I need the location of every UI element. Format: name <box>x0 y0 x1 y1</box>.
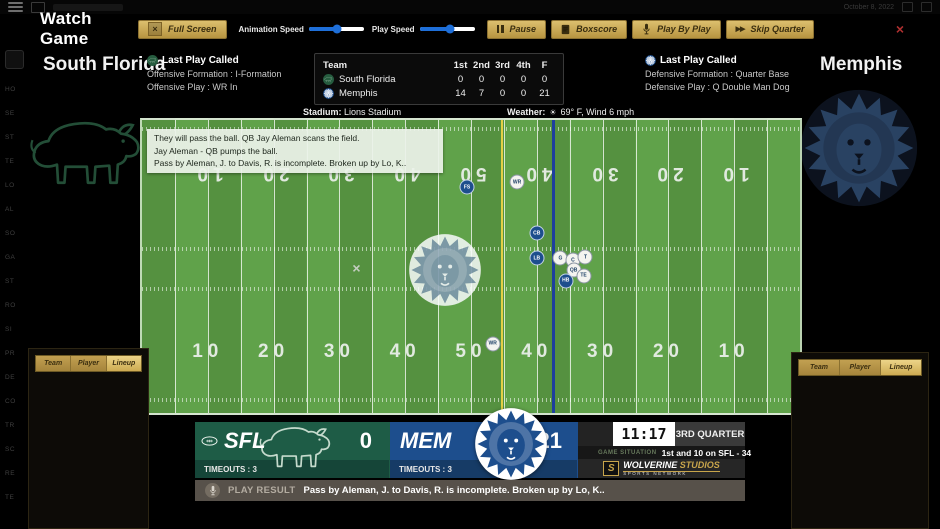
tab-player[interactable]: Player <box>71 356 106 371</box>
first-down-line <box>501 120 503 413</box>
lion-logo <box>799 88 919 208</box>
midfield-lion-logo <box>408 233 482 307</box>
document-icon <box>561 24 570 35</box>
player-marker-wr: WR <box>485 336 500 351</box>
away-team-logo-icon <box>323 88 334 99</box>
yard-number: 50 <box>455 342 486 361</box>
row-team-name: Memphis <box>339 88 378 99</box>
tab-player[interactable]: Player <box>840 360 881 375</box>
scoreboard-away: MEM 21 TIMEOUTS : 3 <box>390 422 578 478</box>
weather-text: 69° F, Wind 6 mph <box>561 107 635 117</box>
player-marker-hb: HB <box>558 273 573 288</box>
pause-button[interactable]: Pause <box>487 20 547 39</box>
full-screen-button[interactable]: × Full Screen <box>138 20 227 39</box>
away-detail-panel: TeamPlayerLineup <box>791 352 929 529</box>
animation-speed-label: Animation Speed <box>239 25 304 34</box>
yard-number: 30 <box>587 164 618 183</box>
score-table: Team 1st 2nd 3rd 4th F South Florida 0 0… <box>314 53 564 105</box>
home-last-play: Last Play Called Offensive Formation : I… <box>147 55 337 92</box>
yard-number: 40 <box>390 342 421 361</box>
offensive-formation: Offensive Formation : I-Formation <box>147 69 337 79</box>
player-marker-fs: FS <box>460 180 475 195</box>
col-final: F <box>534 60 555 71</box>
feed-line: Jay Aleman - QB pumps the ball. <box>154 145 436 158</box>
close-button[interactable]: × <box>896 22 904 36</box>
yard-number: 30 <box>587 342 618 361</box>
scoreboard-home: SFL 0 TIMEOUTS : 3 <box>195 422 390 478</box>
play-result-label: PLAY RESULT <box>228 485 296 496</box>
yard-number: 30 <box>324 342 355 361</box>
away-abbr: MEM <box>400 428 451 454</box>
play-speed-label: Play Speed <box>372 25 415 34</box>
yard-line <box>504 120 505 413</box>
situation-label: GAME SITUATION <box>598 450 657 456</box>
mic-icon <box>642 23 651 35</box>
player-marker-te: TE <box>576 268 591 283</box>
away-team-logo-icon <box>645 55 656 66</box>
page-title: Watch Game <box>40 9 128 49</box>
col-1st: 1st <box>450 60 471 71</box>
col-3rd: 3rd <box>492 60 513 71</box>
network-logo: S WOLVERINE STUDIOS SPORTS NETWORK <box>578 459 745 478</box>
animation-speed-slider[interactable] <box>309 27 364 31</box>
nav-item-stub[interactable]: TE <box>5 494 28 501</box>
scoreboard: SFL 0 TIMEOUTS : 3 MEM 21 TIMEOUTS : 3 1… <box>195 422 745 478</box>
last-play-title: Last Play Called <box>660 55 737 66</box>
nav-item-stub[interactable]: SC <box>5 446 28 453</box>
pause-icon <box>497 25 504 33</box>
stadium-name: Lions Stadium <box>344 107 401 117</box>
lion-logo <box>474 407 548 481</box>
offensive-play: Offensive Play : WR In <box>147 82 337 92</box>
play-speed-slider[interactable] <box>420 27 475 31</box>
window-chrome: October 8, 2022 <box>0 0 940 14</box>
hash-marks <box>142 398 800 402</box>
watch-game-toolbar: Watch Game × Full Screen Animation Speed… <box>28 14 940 44</box>
nav-item-stub[interactable]: CO <box>5 398 28 405</box>
panel-tab-bar: TeamPlayerLineup <box>35 355 142 372</box>
buffalo-logo <box>25 112 153 198</box>
football-field: × They will pass the ball. QB Jay Aleman… <box>140 118 802 415</box>
away-last-play: Last Play Called Defensive Formation : Q… <box>645 55 865 92</box>
last-play-title: Last Play Called <box>162 55 239 66</box>
left-nav: HOSESTTELOALSOGASTROSIPRDECOTRSCRETE <box>0 44 28 529</box>
sun-icon: ☀ <box>549 108 556 117</box>
fast-forward-icon: ▶▶ <box>736 25 745 33</box>
nav-item-stub[interactable]: TR <box>5 422 28 429</box>
tab-lineup[interactable]: Lineup <box>107 356 141 371</box>
slider-knob[interactable] <box>333 25 342 34</box>
play-result-bar: PLAY RESULT Pass by Aleman, J. to Davis,… <box>195 480 745 501</box>
boxscore-button[interactable]: Boxscore <box>551 20 627 39</box>
stadium-info: Stadium: Lions Stadium <box>303 107 401 117</box>
slider-knob[interactable] <box>445 25 454 34</box>
scrimmage-line <box>552 120 555 413</box>
home-score: 0 <box>360 428 372 454</box>
network-tagline: SPORTS NETWORK <box>623 471 720 477</box>
yard-number: 10 <box>719 342 750 361</box>
table-row: South Florida 0 0 0 0 0 <box>323 72 555 86</box>
nav-item-stub[interactable]: HO <box>5 86 28 93</box>
skip-quarter-button[interactable]: ▶▶ Skip Quarter <box>726 20 815 39</box>
player-marker-t: T <box>578 250 593 265</box>
row-team-name: South Florida <box>339 74 396 85</box>
home-abbr: SFL <box>224 428 266 454</box>
app-window: October 8, 2022 Watch Game × Full Screen… <box>0 0 940 529</box>
scoreboard-status: 11:17 3RD QUARTER GAME SITUATION 1st and… <box>578 422 745 478</box>
feed-line: They will pass the ball. QB Jay Aleman s… <box>154 132 436 145</box>
yard-number: 10 <box>192 342 223 361</box>
tab-team[interactable]: Team <box>799 360 840 375</box>
col-team: Team <box>323 60 450 71</box>
nav-item-stub[interactable]: GA <box>5 254 28 261</box>
settings-icon[interactable] <box>921 2 932 12</box>
nav-item-stub[interactable]: RE <box>5 470 28 477</box>
feed-line: Pass by Aleman, J. to Davis, R. is incom… <box>154 157 436 170</box>
date-text: October 8, 2022 <box>844 4 894 11</box>
nav-collapsed-icon[interactable] <box>5 50 24 69</box>
yard-number: 10 <box>719 164 750 183</box>
play-by-play-feed: They will pass the ball. QB Jay Aleman s… <box>147 129 443 173</box>
nav-item-stub[interactable]: AL <box>5 206 28 213</box>
previous-spot-marker: × <box>352 260 360 276</box>
wolverine-s-icon: S <box>603 461 619 476</box>
yard-number: 20 <box>653 342 684 361</box>
menu-icon[interactable] <box>8 2 23 12</box>
nav-item-stub[interactable]: ST <box>5 278 28 285</box>
nav-item-stub[interactable]: RO <box>5 302 28 309</box>
football-icon <box>201 436 218 446</box>
mic-icon <box>205 483 220 498</box>
weather-info: Weather: ☀ 69° F, Wind 6 mph <box>507 107 634 117</box>
player-marker-wr: WR <box>510 175 525 190</box>
yard-line <box>767 120 768 413</box>
tab-team[interactable]: Team <box>36 356 71 371</box>
player-marker-cb: CB <box>529 226 544 241</box>
quarter-label: 3RD QUARTER <box>675 422 745 446</box>
panel-tab-bar: TeamPlayerLineup <box>798 359 922 376</box>
down-and-distance: 1st and 10 on SFL - 34 <box>662 448 752 458</box>
play-by-play-button[interactable]: Play By Play <box>632 20 721 39</box>
nav-item-stub[interactable]: SO <box>5 230 28 237</box>
nav-item-stub[interactable]: SI <box>5 326 28 333</box>
yard-line <box>701 120 702 413</box>
table-row: Memphis 14 7 0 0 21 <box>323 86 555 100</box>
defensive-formation: Defensive Formation : Quarter Base <box>645 69 865 79</box>
home-team-logo-icon <box>147 55 158 66</box>
play-result-text: Pass by Aleman, J. to Davis, R. is incom… <box>304 485 605 496</box>
nav-item-stub[interactable]: PR <box>5 350 28 357</box>
player-marker-lb: LB <box>529 251 544 266</box>
tab-lineup[interactable]: Lineup <box>881 360 921 375</box>
col-4th: 4th <box>513 60 534 71</box>
home-team-logo-icon <box>323 74 334 85</box>
fullscreen-icon: × <box>148 22 162 36</box>
game-clock: 11:17 <box>613 422 675 446</box>
col-2nd: 2nd <box>471 60 492 71</box>
home-detail-panel: TeamPlayerLineup <box>28 348 149 529</box>
yard-number: 20 <box>258 342 289 361</box>
yard-line <box>636 120 637 413</box>
nav-item-stub[interactable]: DE <box>5 374 28 381</box>
calendar-icon[interactable] <box>902 2 913 12</box>
yard-number: 40 <box>521 342 552 361</box>
yard-number: 40 <box>521 164 552 183</box>
yard-number: 20 <box>653 164 684 183</box>
